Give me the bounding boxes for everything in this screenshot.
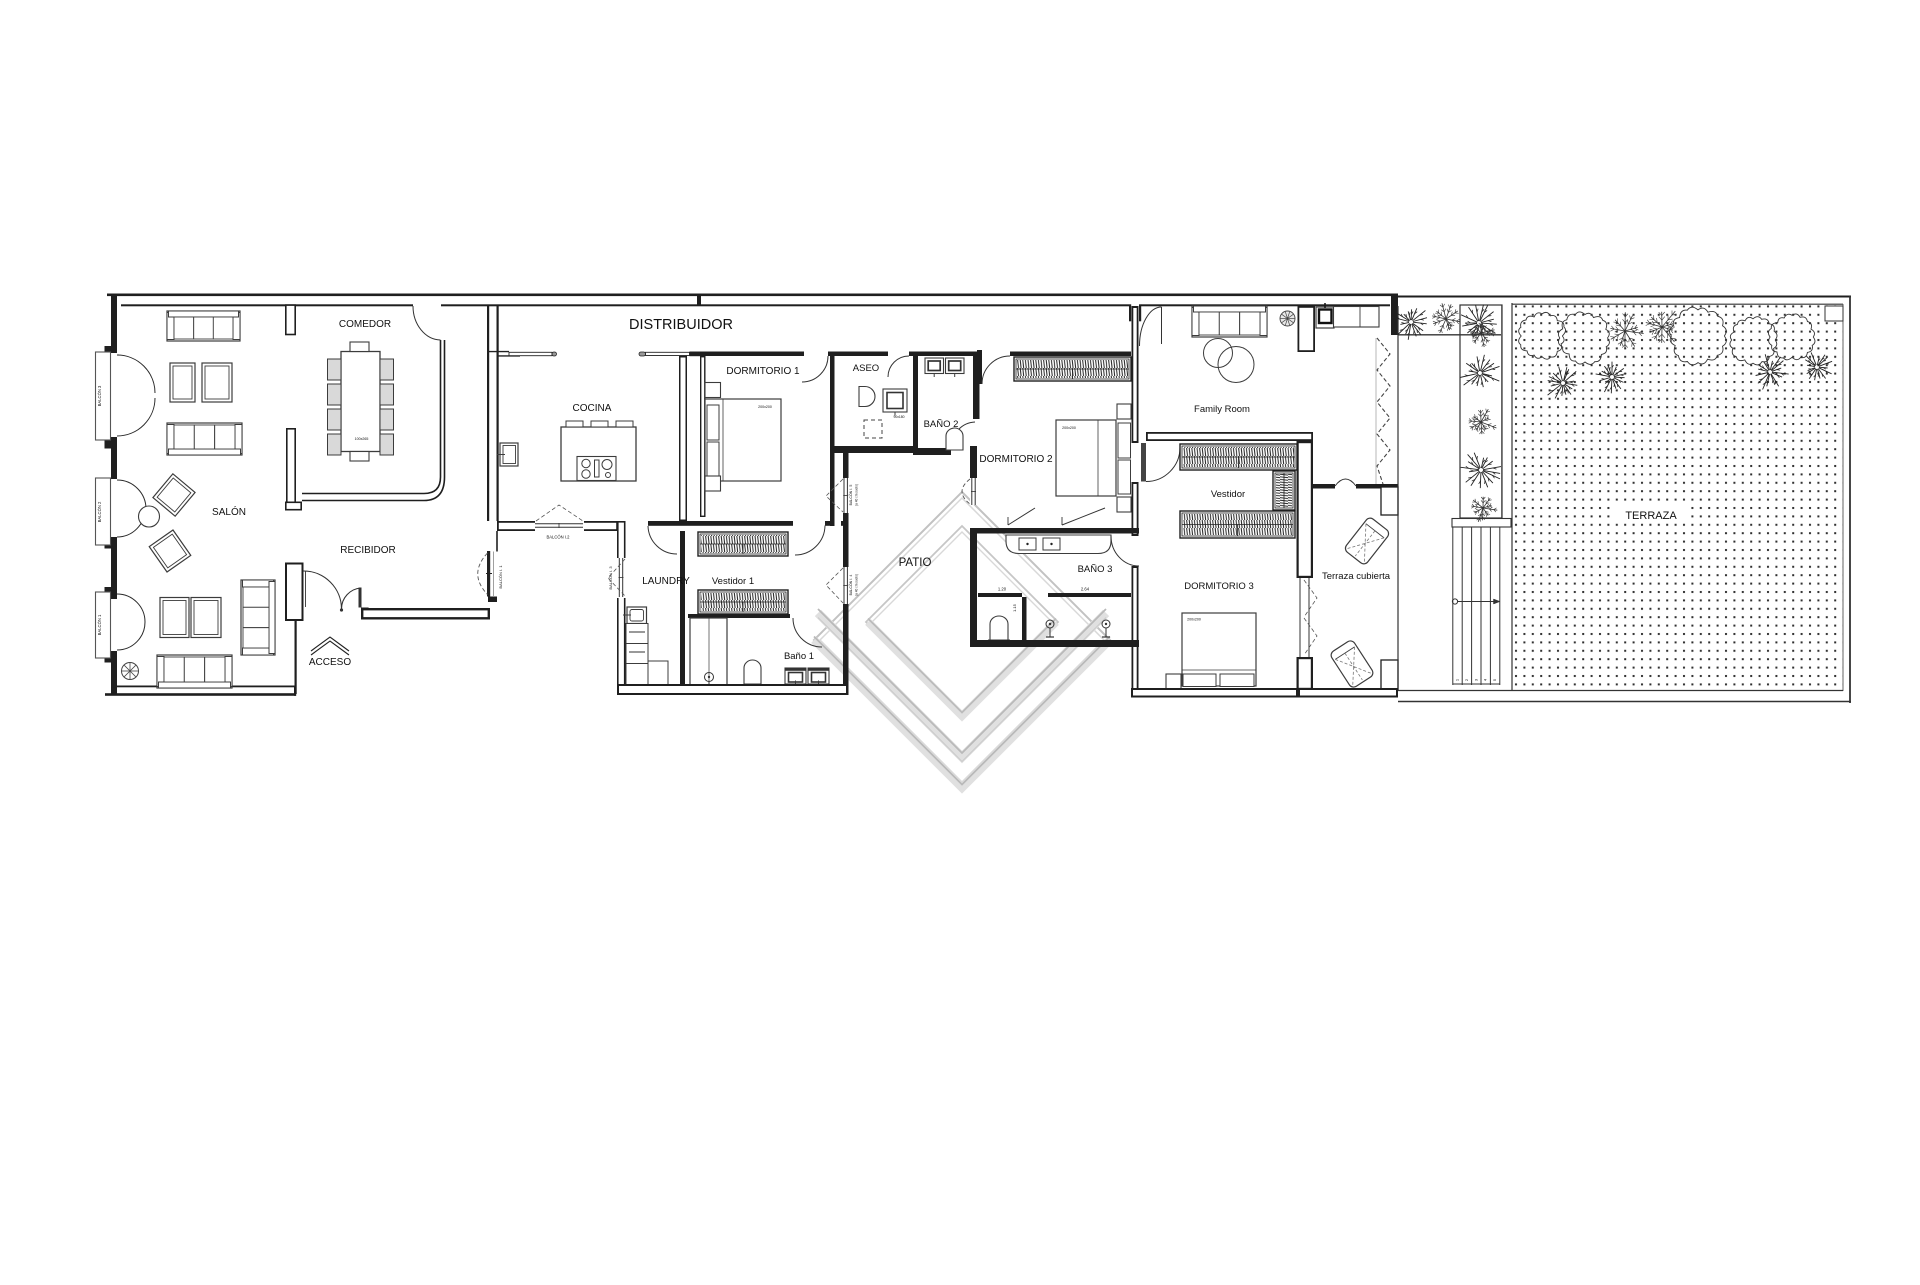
svg-text:BALCÓN I. 4: BALCÓN I. 4 <box>848 575 853 596</box>
svg-text:DISTRIBUIDOR: DISTRIBUIDOR <box>629 317 733 333</box>
svg-text:ASEO: ASEO <box>853 363 879 374</box>
svg-text:200x200: 200x200 <box>1187 618 1201 622</box>
svg-text:BALCÓN 3: BALCÓN 3 <box>97 385 102 406</box>
svg-text:4: 4 <box>1483 678 1488 681</box>
svg-text:2: 2 <box>1464 678 1469 681</box>
svg-text:RECIBIDOR: RECIBIDOR <box>340 545 396 556</box>
svg-text:1.15: 1.15 <box>1012 603 1017 612</box>
svg-text:BAÑO 3: BAÑO 3 <box>1078 564 1113 575</box>
svg-text:Baño 1: Baño 1 <box>784 651 814 662</box>
svg-text:DORMITORIO 3: DORMITORIO 3 <box>1184 581 1254 592</box>
svg-text:Vestidor 1: Vestidor 1 <box>712 576 754 587</box>
svg-text:1: 1 <box>1455 678 1460 681</box>
svg-text:Terraza cubierta: Terraza cubierta <box>1322 571 1391 582</box>
svg-text:BALCÓN I. 5: BALCÓN I. 5 <box>848 485 853 506</box>
svg-text:(a 40 cm suelo): (a 40 cm suelo) <box>855 484 859 506</box>
svg-text:COCINA: COCINA <box>573 403 612 414</box>
svg-text:LAUNDRY: LAUNDRY <box>642 576 690 587</box>
svg-text:COMEDOR: COMEDOR <box>339 319 391 330</box>
svg-text:SALÓN: SALÓN <box>212 505 246 518</box>
svg-text:BALCÓN 2: BALCÓN 2 <box>97 501 102 522</box>
svg-text:ACCESO: ACCESO <box>309 657 351 668</box>
svg-text:BAÑO 2: BAÑO 2 <box>924 419 959 430</box>
svg-text:2.64: 2.64 <box>1081 587 1090 592</box>
svg-text:DORMITORIO 1: DORMITORIO 1 <box>726 366 800 377</box>
svg-text:BALCÓN 1: BALCÓN 1 <box>97 614 102 635</box>
svg-text:BALCÓN I. 1: BALCÓN I. 1 <box>498 565 503 589</box>
svg-text:1.20: 1.20 <box>998 587 1007 592</box>
svg-text:Vestidor: Vestidor <box>1211 489 1245 500</box>
svg-text:3: 3 <box>1473 678 1478 681</box>
svg-text:100x265: 100x265 <box>355 437 369 441</box>
svg-text:200x200: 200x200 <box>758 405 772 409</box>
svg-text:TERRAZA: TERRAZA <box>1625 510 1677 522</box>
svg-text:BALCÓN I.2: BALCÓN I.2 <box>546 535 570 540</box>
svg-text:DORMITORIO 2: DORMITORIO 2 <box>979 454 1053 465</box>
svg-text:BALCÓN I. 3: BALCÓN I. 3 <box>608 566 613 590</box>
svg-text:Family Room: Family Room <box>1194 404 1250 415</box>
svg-text:200x200: 200x200 <box>1062 426 1076 430</box>
svg-text:5: 5 <box>1492 678 1497 681</box>
svg-text:90x180: 90x180 <box>893 415 904 419</box>
svg-text:PATIO: PATIO <box>899 557 932 569</box>
svg-text:(a 40 cm suelo): (a 40 cm suelo) <box>855 574 859 596</box>
